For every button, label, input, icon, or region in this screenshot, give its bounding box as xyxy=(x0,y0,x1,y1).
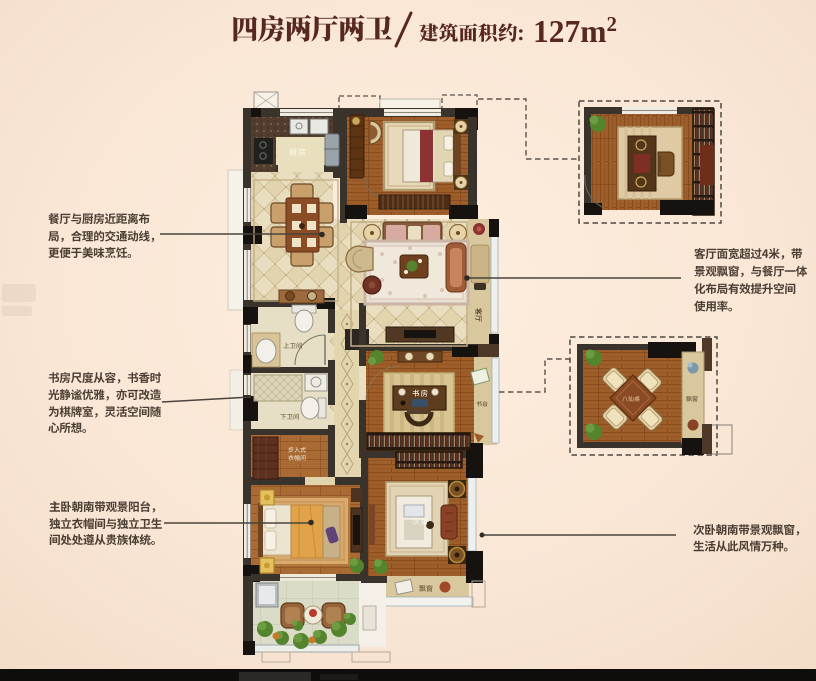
svg-text:127m2: 127m2 xyxy=(533,12,617,49)
